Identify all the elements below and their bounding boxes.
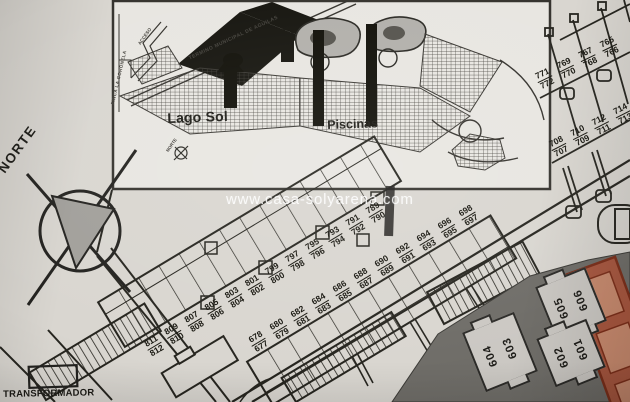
building-number: 601 (571, 337, 590, 362)
piscinas-label: Piscinas (327, 116, 378, 132)
plot-map-photo: TERMINO MUNICIPAL DE AGUILAS FINCA LA CO… (0, 0, 630, 402)
round-building (598, 205, 630, 243)
building-number: 603 (500, 336, 519, 361)
building-number: 606 (571, 288, 590, 313)
building-number: 604 (481, 343, 500, 368)
lago-sol-label: Lago Sol (167, 108, 228, 126)
compass-rose (27, 150, 136, 305)
transformador-label: TRANSFORMADOR (3, 387, 94, 400)
building-number: 605 (552, 295, 571, 320)
parking-strip-left (30, 304, 161, 400)
building-number: 602 (552, 344, 571, 369)
inset-map (113, 0, 550, 189)
